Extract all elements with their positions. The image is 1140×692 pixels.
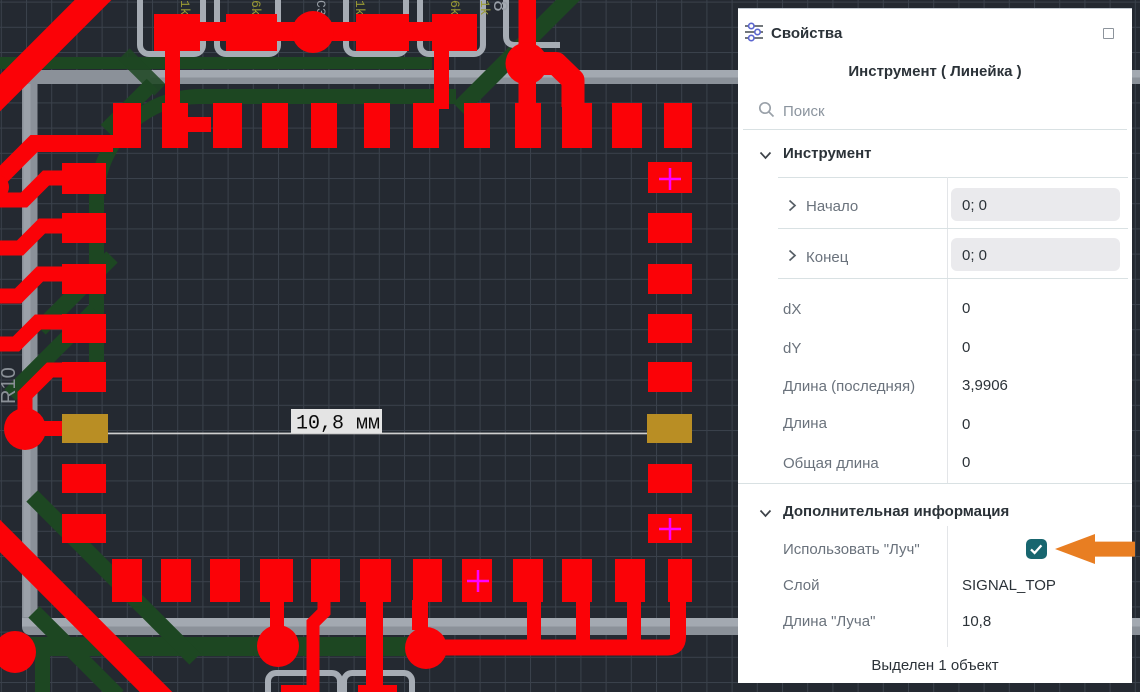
- svg-text:6k: 6k: [447, 0, 462, 16]
- svg-text:8: 8: [487, 0, 510, 12]
- svg-text:R10: R10: [0, 367, 20, 404]
- svg-text:1k: 1k: [352, 0, 367, 16]
- svg-text:10,8 мм: 10,8 мм: [296, 413, 380, 436]
- svg-text:1k: 1k: [177, 0, 192, 16]
